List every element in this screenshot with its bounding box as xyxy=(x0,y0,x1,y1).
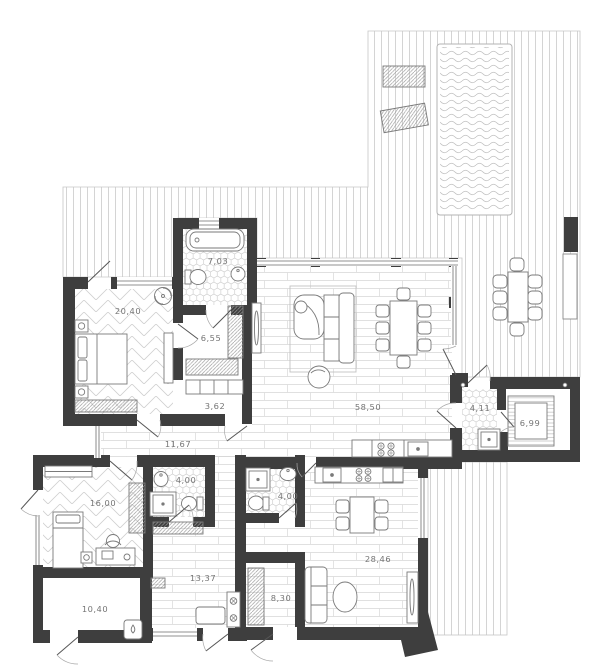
room-label-walk-in-closet: 6,55 xyxy=(201,333,221,343)
sink-icon xyxy=(280,468,296,481)
room-label-guest-entry: 8,30 xyxy=(271,593,291,603)
toilet-icon xyxy=(249,496,270,510)
sink-icon xyxy=(231,267,245,281)
room-label-shower-room: 4,00 xyxy=(176,475,196,485)
shower-icon xyxy=(478,429,500,450)
vent-icon xyxy=(563,383,567,387)
deck-side-strip xyxy=(428,462,507,635)
toilet-icon xyxy=(185,270,206,285)
room-label-hall: 3,62 xyxy=(205,401,225,411)
radiator-icon xyxy=(151,578,165,588)
room-label-guest-living: 28,46 xyxy=(365,554,391,564)
room-label-sauna: 6,99 xyxy=(520,418,540,428)
window xyxy=(199,218,219,229)
window-wall xyxy=(257,259,458,266)
shower-icon xyxy=(150,492,176,516)
sofa-icon xyxy=(305,567,327,623)
door-swing-arc xyxy=(178,339,198,348)
pouf-icon xyxy=(308,366,330,388)
room-label-living: 58,50 xyxy=(355,402,381,412)
coffee-table-icon xyxy=(333,582,357,612)
room-label-utility: 10,40 xyxy=(82,604,108,614)
room-label-bedroom-2: 16,00 xyxy=(90,498,116,508)
deck-pillar xyxy=(564,217,578,252)
boiler-icon xyxy=(124,620,142,639)
radiator-icon xyxy=(75,400,137,412)
bed-icon xyxy=(53,512,83,568)
wardrobe-rail-icon xyxy=(248,568,264,625)
bench-icon xyxy=(196,607,225,624)
coat-rail-icon xyxy=(153,522,203,534)
tv-unit-icon xyxy=(252,303,261,353)
window xyxy=(419,478,427,538)
window-wall xyxy=(451,266,458,345)
shower-icon xyxy=(246,468,270,491)
room-label-corridor: 11,67 xyxy=(165,439,191,449)
planter-icon xyxy=(563,254,577,319)
room-label-sauna-vestibule: 4,11 xyxy=(470,403,490,413)
sink-icon xyxy=(154,472,168,487)
plant-shelf-icon xyxy=(227,592,240,627)
closet-furniture xyxy=(186,306,243,394)
vent-icon xyxy=(461,383,465,387)
pool xyxy=(437,44,512,215)
shelf-icon xyxy=(186,380,243,394)
side-table-icon xyxy=(295,301,307,313)
kitchen-counter-icon xyxy=(315,467,403,483)
wardrobe-rail-icon xyxy=(228,306,243,358)
cabinet-icon xyxy=(164,333,173,383)
tv-unit-icon xyxy=(407,572,418,623)
desk-icon xyxy=(96,548,135,565)
room-label-bathroom: 7,03 xyxy=(208,256,228,266)
bench-icon xyxy=(186,359,238,375)
window xyxy=(34,515,42,565)
window xyxy=(153,629,197,640)
room-label-guest-shower: 4,00 xyxy=(278,491,298,501)
outdoor-table-icon xyxy=(508,272,528,322)
wardrobe-rail-icon xyxy=(129,483,145,533)
room-label-master-bedroom: 20,40 xyxy=(115,306,141,316)
room-label-hallway: 13,37 xyxy=(190,573,216,583)
kitchen-counter-icon xyxy=(352,440,452,457)
sun-lounger-icon xyxy=(383,66,425,87)
floor-plan-page: 20,40 7,03 6,55 3,62 58,50 11,67 16,00 4… xyxy=(0,0,614,671)
floor-plan-canvas: 20,40 7,03 6,55 3,62 58,50 11,67 16,00 4… xyxy=(0,0,614,671)
window xyxy=(94,426,101,458)
